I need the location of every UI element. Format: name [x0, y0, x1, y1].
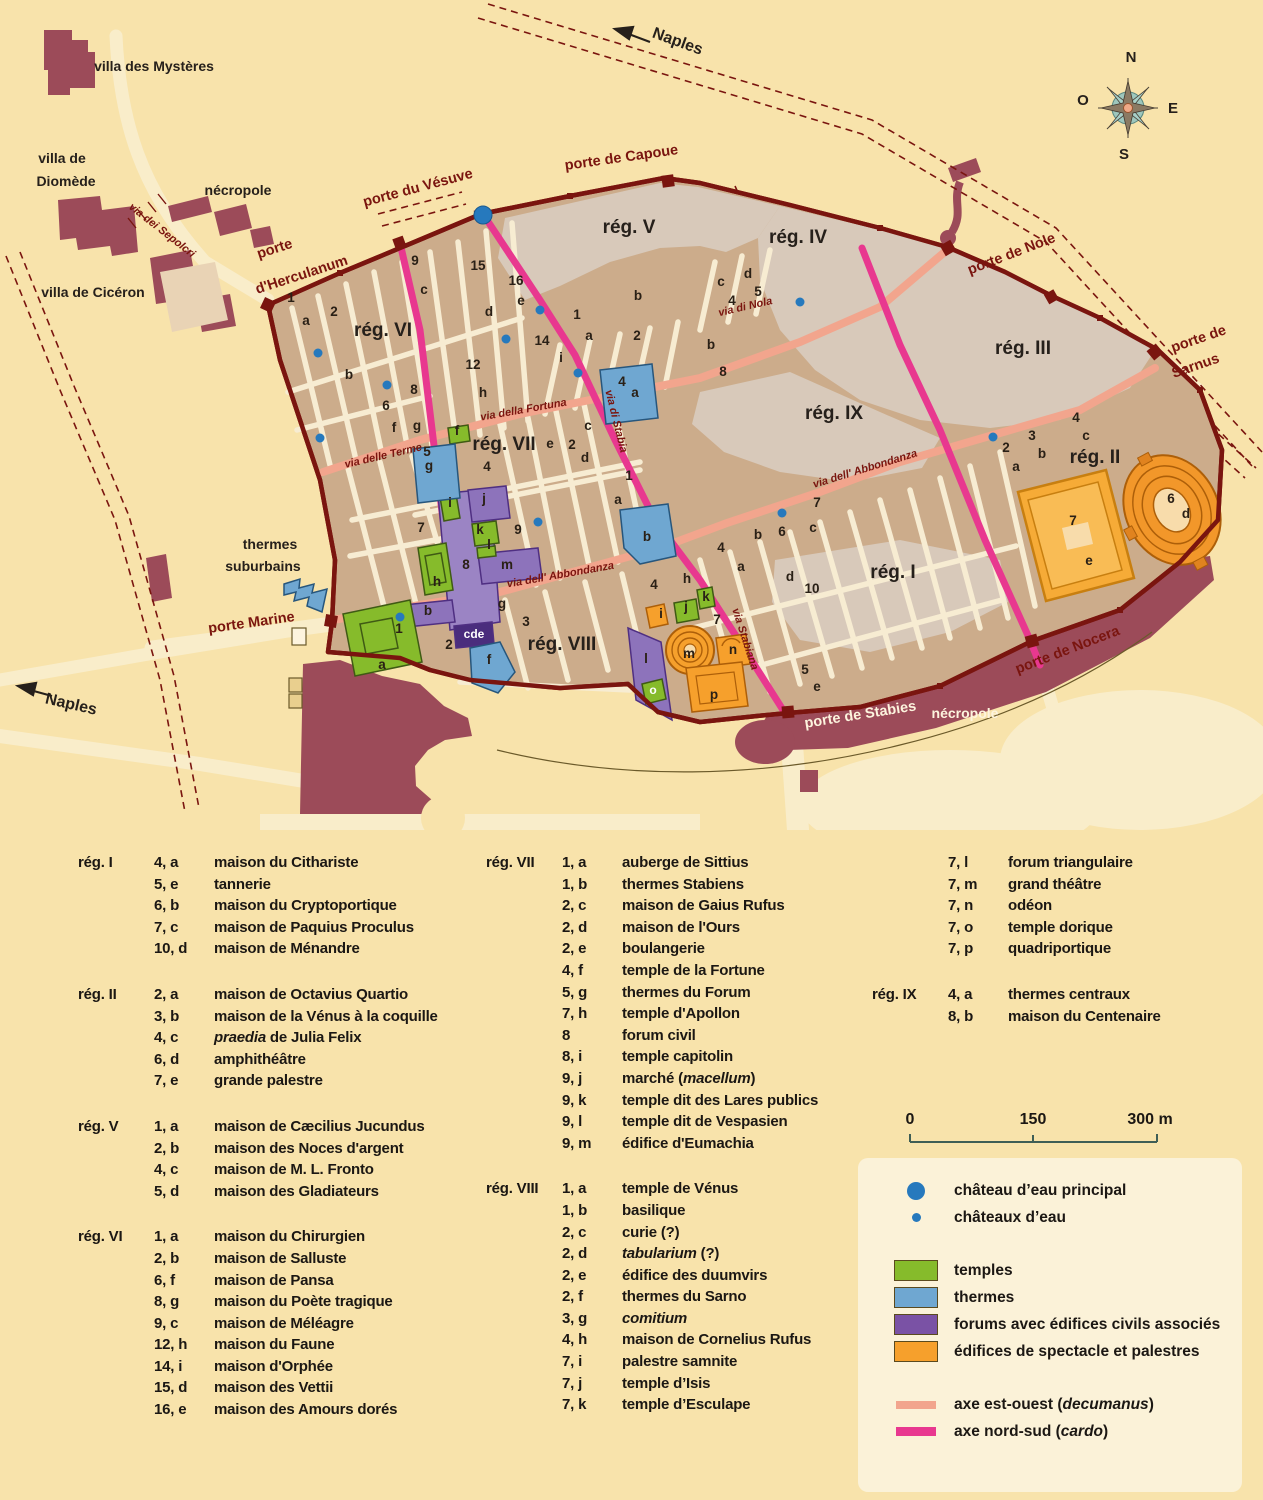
svg-text:e: e [546, 436, 554, 451]
index-number: 8, b [948, 1006, 1008, 1028]
svg-text:4: 4 [650, 577, 658, 592]
index-region [872, 917, 948, 939]
svg-text:rég. VI: rég. VI [354, 320, 412, 341]
index-region [78, 1138, 154, 1160]
index-row: 7, h temple d'Apollon [486, 1003, 872, 1025]
legend-label: édifices de spectacle et palestres [954, 1343, 1200, 1361]
index-region [78, 1070, 154, 1092]
index-region [486, 960, 562, 982]
svg-text:4: 4 [717, 540, 725, 555]
svg-text:j: j [481, 491, 486, 506]
index-row: 10, d maison de Ménandre [78, 938, 464, 960]
legend-swatch [907, 1182, 925, 1200]
index-number: 1, a [562, 1178, 622, 1200]
index-name: tannerie [214, 874, 464, 896]
index-number: 7, j [562, 1373, 622, 1395]
svg-text:rég. IX: rég. IX [805, 403, 863, 424]
svg-text:O: O [1077, 92, 1089, 109]
index-number: 1, a [562, 852, 622, 874]
legend-swatch-cell [892, 1287, 940, 1308]
legend-swatch [894, 1260, 938, 1281]
index-region [486, 1200, 562, 1222]
index-region [78, 1270, 154, 1292]
index-name: grand théâtre [1008, 874, 1258, 896]
svg-text:b: b [1038, 446, 1046, 461]
index-name: temple de Vénus [622, 1178, 872, 1200]
svg-text:j: j [683, 599, 688, 614]
svg-text:7: 7 [813, 495, 821, 510]
index-row: 2, e boulangerie [486, 938, 872, 960]
index-row: 2, d maison de l'Ours [486, 917, 872, 939]
index-name: temple d’Esculape [622, 1394, 872, 1416]
index-name: praedia de Julia Felix [214, 1027, 464, 1049]
svg-text:c: c [1082, 428, 1090, 443]
svg-text:e: e [813, 679, 821, 694]
svg-text:6: 6 [382, 398, 390, 413]
svg-text:2: 2 [330, 304, 338, 319]
index-row: 5, d maison des Gladiateurs [78, 1181, 464, 1203]
svg-text:10: 10 [804, 581, 819, 596]
index-number: 7, c [154, 917, 214, 939]
index-name: maison du Cryptoportique [214, 895, 464, 917]
index-name: maison du Poète tragique [214, 1291, 464, 1313]
index-row: 8, i temple capitolin [486, 1046, 872, 1068]
index-name: maison de l'Ours [622, 917, 872, 939]
svg-text:g: g [425, 458, 433, 473]
index-region [486, 1351, 562, 1373]
svg-text:i: i [559, 350, 563, 365]
index-row: 3, b maison de la Vénus à la coquille [78, 1006, 464, 1028]
svg-text:b: b [643, 529, 651, 544]
index-number: 5, g [562, 982, 622, 1004]
index-region [78, 1006, 154, 1028]
index-region: rég. VIII [486, 1178, 562, 1200]
legend-label: temples [954, 1262, 1013, 1280]
index-row: 7, n odéon [872, 895, 1258, 917]
legend-swatch [894, 1314, 938, 1335]
index-row: 6, f maison de Pansa [78, 1270, 464, 1292]
index-region [78, 1049, 154, 1071]
legend-label: axe est-ouest (decumanus) [954, 1396, 1154, 1414]
svg-text:1: 1 [625, 468, 633, 483]
svg-text:d: d [786, 569, 794, 584]
index-row: rég. IX 4, a thermes centraux [872, 984, 1258, 1006]
index-region [872, 938, 948, 960]
legend-swatch-cell [892, 1182, 940, 1200]
index-number: 3, b [154, 1006, 214, 1028]
index-number: 4, f [562, 960, 622, 982]
index-number: 6, d [154, 1049, 214, 1071]
svg-text:3: 3 [1028, 428, 1036, 443]
svg-text:p: p [710, 687, 718, 702]
index-number: 1, a [154, 1116, 214, 1138]
index-name: temple d’Isis [622, 1373, 872, 1395]
index-row: 6, b maison du Cryptoportique [78, 895, 464, 917]
index-number: 6, b [154, 895, 214, 917]
legend-row: thermes [892, 1285, 1242, 1310]
index-region [78, 938, 154, 960]
svg-text:villa de Cicéron: villa de Cicéron [41, 284, 144, 300]
index-number: 2, b [154, 1138, 214, 1160]
svg-text:l: l [487, 537, 491, 552]
svg-text:f: f [487, 652, 492, 667]
svg-text:12: 12 [465, 357, 480, 372]
index-name: thermes du Sarno [622, 1286, 872, 1308]
index-region: rég. I [78, 852, 154, 874]
index-number: 2, e [562, 1265, 622, 1287]
legend-row: forums avec édifices civils associés [892, 1312, 1242, 1337]
index-number: 7, e [154, 1070, 214, 1092]
svg-text:9: 9 [411, 253, 419, 268]
svg-text:k: k [702, 589, 710, 604]
svg-text:8: 8 [462, 557, 470, 572]
svg-text:1: 1 [573, 307, 581, 322]
svg-text:d: d [581, 450, 589, 465]
svg-text:rég. VII: rég. VII [472, 434, 535, 455]
legend-swatch [896, 1401, 936, 1409]
index-region [486, 1329, 562, 1351]
palestre-samnite [646, 604, 668, 628]
svg-text:6: 6 [1167, 491, 1175, 506]
svg-text:a: a [737, 559, 745, 574]
svg-text:16: 16 [508, 273, 524, 288]
index-region [486, 1003, 562, 1025]
index-region [486, 938, 562, 960]
svg-text:a: a [378, 657, 386, 672]
svg-text:4: 4 [1072, 410, 1080, 425]
index-name: temple capitolin [622, 1046, 872, 1068]
index-region [78, 895, 154, 917]
svg-text:c: c [809, 520, 817, 535]
index-region [486, 1243, 562, 1265]
index-region [78, 1248, 154, 1270]
index-name: temple dit de Vespasien [622, 1111, 872, 1133]
index-row: 2, c maison de Gaius Rufus [486, 895, 872, 917]
svg-text:7: 7 [713, 612, 721, 627]
index-number: 7, o [948, 917, 1008, 939]
svg-text:rég. II: rég. II [1070, 447, 1121, 468]
index-number: 4, a [948, 984, 1008, 1006]
svg-text:rég. IV: rég. IV [769, 227, 827, 248]
index-number: 2, d [562, 1243, 622, 1265]
index-name: temple d'Apollon [622, 1003, 872, 1025]
index-number: 8, g [154, 1291, 214, 1313]
svg-text:m: m [501, 557, 513, 572]
index-number: 8 [562, 1025, 622, 1047]
compass-rose [1098, 78, 1158, 138]
svg-text:c: c [717, 274, 725, 289]
index-row: 7, p quadriportique [872, 938, 1258, 960]
index-name: maison des Gladiateurs [214, 1181, 464, 1203]
legend-swatch [896, 1427, 936, 1436]
index-number: 5, e [154, 874, 214, 896]
index-number: 16, e [154, 1399, 214, 1421]
index-row: rég. VI 1, a maison du Chirurgien [78, 1226, 464, 1248]
index-name: odéon [1008, 895, 1258, 917]
index-region [486, 1265, 562, 1287]
svg-text:1: 1 [287, 290, 295, 305]
legend-label: château d’eau principal [954, 1182, 1126, 1200]
index-name: palestre samnite [622, 1351, 872, 1373]
index-number: 10, d [154, 938, 214, 960]
index-number: 8, i [562, 1046, 622, 1068]
index-number: 9, c [154, 1313, 214, 1335]
svg-text:i: i [659, 606, 663, 621]
index-region [486, 917, 562, 939]
index-name: marché (macellum) [622, 1068, 872, 1090]
legend-swatch-cell [892, 1260, 940, 1281]
scale-mid: 150 [1020, 1111, 1047, 1128]
svg-text:rég. VIII: rég. VIII [528, 634, 597, 655]
index-row: 7, o temple dorique [872, 917, 1258, 939]
index-region [486, 1394, 562, 1416]
index-name: maison de Octavius Quartio [214, 984, 464, 1006]
legend-row: château d’eau principal [892, 1178, 1242, 1203]
svg-text:h: h [683, 571, 691, 586]
svg-text:5: 5 [801, 662, 809, 677]
svg-text:4: 4 [728, 293, 736, 308]
svg-text:m: m [683, 646, 695, 661]
legend-swatch-cell [892, 1401, 940, 1409]
svg-text:a: a [1012, 459, 1020, 474]
index-name: thermes du Forum [622, 982, 872, 1004]
svg-text:b: b [754, 527, 762, 542]
index-region [78, 1291, 154, 1313]
index-number: 4, c [154, 1159, 214, 1181]
index-name: édifice d'Eumachia [622, 1133, 872, 1155]
legend-swatch [894, 1287, 938, 1308]
svg-text:a: a [585, 328, 593, 343]
index-row: 2, b maison de Salluste [78, 1248, 464, 1270]
svg-text:a: a [302, 313, 310, 328]
index-name: maison de Cæcilius Jucundus [214, 1116, 464, 1138]
index-region [78, 874, 154, 896]
index-row: 2, b maison des Noces d'argent [78, 1138, 464, 1160]
index-region [78, 1313, 154, 1335]
legend-swatch [894, 1341, 938, 1362]
svg-text:villa de: villa de [38, 150, 86, 166]
legend-swatch-cell [892, 1427, 940, 1436]
index-column-2: rég. VII 1, a auberge de Sittius 1, b th… [486, 852, 872, 1416]
index-name: maison de Pansa [214, 1270, 464, 1292]
index-number: 7, p [948, 938, 1008, 960]
index-number: 2, a [154, 984, 214, 1006]
index-region [486, 1286, 562, 1308]
svg-text:f: f [392, 420, 397, 435]
index-number: 5, d [154, 1181, 214, 1203]
index-region [78, 1399, 154, 1421]
index-region: rég. II [78, 984, 154, 1006]
index-number: 7, l [948, 852, 1008, 874]
index-name: maison de Cornelius Rufus [622, 1329, 872, 1351]
legend-swatch-cell [892, 1213, 940, 1222]
index-region [486, 1133, 562, 1155]
index-number: 7, k [562, 1394, 622, 1416]
index-row: 4, c maison de M. L. Fronto [78, 1159, 464, 1181]
index-row: 7, l forum triangulaire [872, 852, 1258, 874]
svg-text:b: b [424, 603, 432, 618]
index-region [486, 895, 562, 917]
scale-start: 0 [906, 1111, 915, 1128]
index-region: rég. IX [872, 984, 948, 1006]
legend-label: châteaux d’eau [954, 1209, 1066, 1227]
svg-text:6: 6 [778, 524, 786, 539]
svg-text:cde: cde [464, 627, 485, 641]
svg-text:2: 2 [568, 437, 576, 452]
index-name: basilique [622, 1200, 872, 1222]
svg-text:3: 3 [522, 614, 530, 629]
index-number: 4, c [154, 1027, 214, 1049]
svg-text:k: k [476, 522, 484, 537]
index-row: 9, l temple dit de Vespasien [486, 1111, 872, 1133]
index-name: curie (?) [622, 1222, 872, 1244]
index-region [78, 1027, 154, 1049]
index-region [486, 1308, 562, 1330]
svg-text:14: 14 [534, 333, 550, 348]
svg-text:8: 8 [410, 382, 418, 397]
svg-text:o: o [649, 683, 656, 697]
index-number: 1, b [562, 1200, 622, 1222]
index-region [78, 1334, 154, 1356]
svg-text:nécropole: nécropole [932, 705, 999, 721]
index-row: 7, c maison de Paquius Proculus [78, 917, 464, 939]
index-row: 7, m grand théâtre [872, 874, 1258, 896]
svg-text:5: 5 [423, 444, 431, 459]
svg-text:rég. I: rég. I [870, 562, 915, 583]
svg-text:b: b [707, 337, 715, 352]
index-number: 2, c [562, 1222, 622, 1244]
svg-text:e: e [517, 293, 525, 308]
svg-text:g: g [498, 596, 506, 611]
index-region [78, 1181, 154, 1203]
index-number: 7, i [562, 1351, 622, 1373]
index-name: auberge de Sittius [622, 852, 872, 874]
svg-text:i: i [448, 495, 452, 510]
index-name: maison d'Orphée [214, 1356, 464, 1378]
index-number: 6, f [154, 1270, 214, 1292]
svg-text:d: d [744, 266, 752, 281]
legend-label: axe nord-sud (cardo) [954, 1423, 1108, 1441]
svg-text:d: d [1182, 506, 1190, 521]
svg-text:h: h [433, 574, 441, 589]
index-name: maison des Vettii [214, 1377, 464, 1399]
svg-text:8: 8 [719, 364, 727, 379]
index-number: 7, n [948, 895, 1008, 917]
index-name: maison des Noces d'argent [214, 1138, 464, 1160]
index-name: forum civil [622, 1025, 872, 1047]
index-name: maison de Gaius Rufus [622, 895, 872, 917]
index-number: 9, k [562, 1090, 622, 1112]
svg-text:4: 4 [618, 374, 626, 389]
index-row: 8, g maison du Poète tragique [78, 1291, 464, 1313]
index-row: 3, g comitium [486, 1308, 872, 1330]
index-region [78, 917, 154, 939]
index-row: 8, b maison du Centenaire [872, 1006, 1258, 1028]
svg-text:h: h [479, 385, 487, 400]
index-row: 16, e maison des Amours dorés [78, 1399, 464, 1421]
pompeii-map-page: ported'Herculanumporte du Vésuveporte de… [0, 0, 1263, 1500]
index-row: 15, d maison des Vettii [78, 1377, 464, 1399]
index-name: temple de la Fortune [622, 960, 872, 982]
index-number: 15, d [154, 1377, 214, 1399]
index-column-3: 7, l forum triangulaire 7, m grand théât… [872, 852, 1258, 1027]
index-name: grande palestre [214, 1070, 464, 1092]
index-row: rég. II 2, a maison de Octavius Quartio [78, 984, 464, 1006]
svg-text:suburbains: suburbains [225, 558, 301, 574]
index-region [78, 1377, 154, 1399]
svg-text:S: S [1119, 146, 1129, 163]
index-region [872, 852, 948, 874]
index-row: 14, i maison d'Orphée [78, 1356, 464, 1378]
legend-swatch-cell [892, 1314, 940, 1335]
svg-text:7: 7 [417, 520, 425, 535]
index-region [486, 1025, 562, 1047]
legend-row: temples [892, 1258, 1242, 1283]
legend-panel: château d’eau principal châteaux d’eau t… [858, 1158, 1242, 1492]
svg-text:9: 9 [514, 522, 522, 537]
index-number: 9, j [562, 1068, 622, 1090]
index-region: rég. VII [486, 852, 562, 874]
index-row: 2, e édifice des duumvirs [486, 1265, 872, 1287]
svg-text:n: n [729, 642, 737, 657]
index-name: maison de Paquius Proculus [214, 917, 464, 939]
svg-text:f: f [455, 423, 460, 438]
index-row: 1, b thermes Stabiens [486, 874, 872, 896]
svg-text:7: 7 [1069, 513, 1077, 528]
index-row: rég. VII 1, a auberge de Sittius [486, 852, 872, 874]
index-row: 4, c praedia de Julia Felix [78, 1027, 464, 1049]
index-number: 12, h [154, 1334, 214, 1356]
index-row: rég. VIII 1, a temple de Vénus [486, 1178, 872, 1200]
index-number: 2, c [562, 895, 622, 917]
index-region [486, 1373, 562, 1395]
index-number: 14, i [154, 1356, 214, 1378]
legend-row: axe nord-sud (cardo) [892, 1419, 1242, 1444]
legend-label: forums avec édifices civils associés [954, 1316, 1220, 1334]
svg-text:a: a [631, 385, 639, 400]
index-row: 7, k temple d’Esculape [486, 1394, 872, 1416]
index-number: 2, f [562, 1286, 622, 1308]
svg-text:rég. III: rég. III [995, 338, 1051, 359]
svg-text:2: 2 [445, 637, 453, 652]
index-number: 2, b [154, 1248, 214, 1270]
index-row: 1, b basilique [486, 1200, 872, 1222]
svg-text:5: 5 [754, 284, 762, 299]
index-column-1: rég. I 4, a maison du Cithariste 5, e ta… [78, 852, 464, 1421]
marche-macellum [468, 486, 510, 522]
index-number: 9, m [562, 1133, 622, 1155]
index-row: 2, c curie (?) [486, 1222, 872, 1244]
index-name: maison du Faune [214, 1334, 464, 1356]
index-name: maison de Méléagre [214, 1313, 464, 1335]
svg-text:c: c [584, 418, 592, 433]
svg-text:g: g [413, 418, 421, 433]
svg-text:nécropole: nécropole [205, 182, 272, 198]
index-region [872, 895, 948, 917]
index-row: rég. V 1, a maison de Cæcilius Jucundus [78, 1116, 464, 1138]
index-row: 7, e grande palestre [78, 1070, 464, 1092]
index-name: amphithéâtre [214, 1049, 464, 1071]
index-region [486, 1046, 562, 1068]
index-name: maison de Ménandre [214, 938, 464, 960]
svg-text:d: d [485, 304, 493, 319]
index-name: quadriportique [1008, 938, 1258, 960]
legend-row: axe est-ouest (decumanus) [892, 1392, 1242, 1417]
index-row: 7, i palestre samnite [486, 1351, 872, 1373]
index-name: maison des Amours dorés [214, 1399, 464, 1421]
index-name: comitium [622, 1308, 872, 1330]
index-row: 9, j marché (macellum) [486, 1068, 872, 1090]
